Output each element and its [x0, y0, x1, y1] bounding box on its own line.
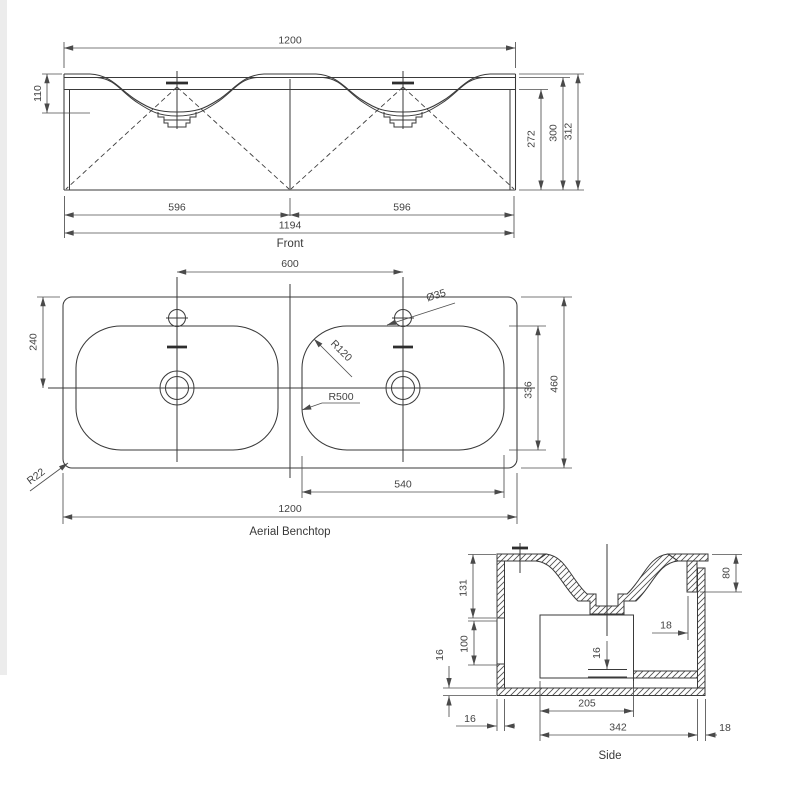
side-view-label: Side	[598, 750, 621, 762]
side-drawer-box	[540, 615, 634, 678]
aerial-dim-r22: R22	[25, 466, 48, 487]
drawing-svg: 1200 110 272 300 312 596 596 1194 Fron	[0, 0, 800, 800]
aerial-dim-240: 240	[28, 333, 40, 351]
aerial-view: 600 Ø35 240 R120 R500 336 460 540	[25, 258, 572, 538]
aerial-dim-540: 540	[394, 479, 412, 491]
side-dim-18-skirt: 18	[660, 620, 672, 632]
aerial-dim-336: 336	[523, 381, 535, 399]
front-view-label: Front	[277, 238, 305, 250]
side-dim-18-back: 18	[719, 722, 731, 734]
front-dim-596-right: 596	[393, 202, 411, 214]
side-dim-131: 131	[458, 579, 470, 597]
aerial-dim-r500: R500	[328, 391, 353, 403]
front-dimensions: 1200 110 272 300 312 596 596 1194	[32, 35, 584, 239]
technical-drawing-sheet: 1200 110 272 300 312 596 596 1194 Fron	[0, 0, 800, 800]
side-shelf	[634, 671, 698, 678]
side-geometry	[497, 543, 708, 696]
front-dim-596-left: 596	[168, 202, 186, 214]
front-dim-1200: 1200	[278, 35, 302, 47]
side-dim-342: 342	[609, 722, 627, 734]
side-dim-16-bottom-panel: 16	[434, 649, 446, 661]
aerial-geometry	[48, 277, 535, 478]
front-dim-312: 312	[563, 123, 575, 141]
side-dim-16-side: 16	[464, 713, 476, 725]
front-dim-272: 272	[526, 130, 538, 148]
aerial-dimensions: 600 Ø35 240 R120 R500 336 460 540	[25, 258, 572, 524]
side-bottom-panel	[497, 688, 705, 696]
front-dim-110: 110	[32, 85, 44, 102]
front-geometry	[64, 71, 516, 190]
front-view: 1200 110 272 300 312 596 596 1194 Fron	[32, 35, 584, 251]
side-dim-80: 80	[721, 567, 733, 579]
side-right-wall	[698, 568, 706, 688]
aerial-dim-r120: R120	[328, 338, 354, 364]
aerial-dim-tap-hole: Ø35	[425, 287, 448, 304]
side-dim-16-shelf: 16	[591, 647, 603, 659]
aerial-dim-460: 460	[549, 375, 561, 393]
front-dim-300: 300	[548, 124, 560, 142]
side-view: 131 100 16 16 205 342	[434, 543, 742, 762]
aerial-dim-600: 600	[281, 258, 299, 270]
side-dim-100: 100	[459, 635, 471, 653]
aerial-dim-1200: 1200	[278, 503, 302, 515]
side-dim-205: 205	[578, 698, 596, 710]
front-dim-1194: 1194	[279, 220, 302, 232]
side-back-skirt	[687, 561, 697, 592]
aerial-view-label: Aerial Benchtop	[249, 526, 330, 538]
